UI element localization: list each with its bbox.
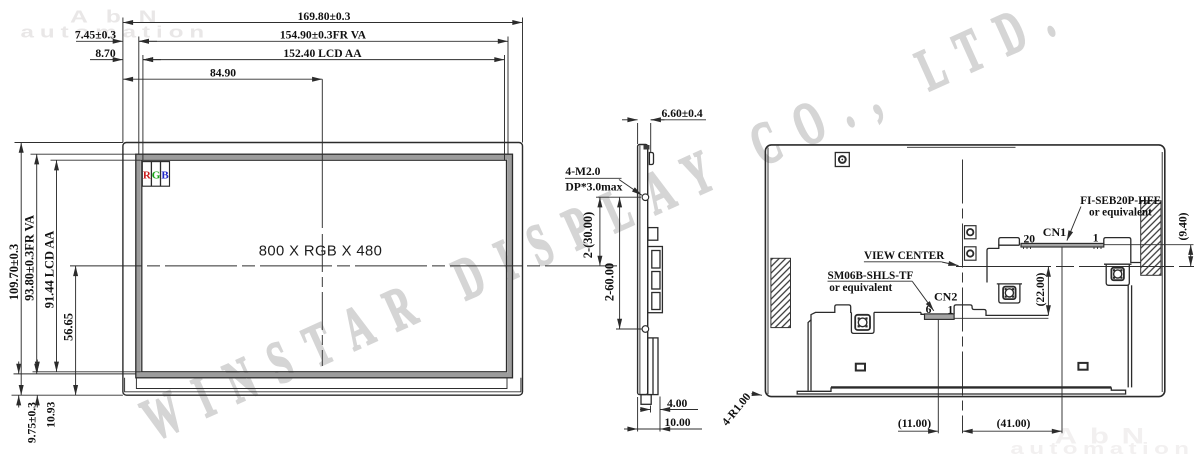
- svg-text:8.70: 8.70: [95, 47, 115, 60]
- svg-text:109.70±0.3: 109.70±0.3: [7, 244, 21, 300]
- svg-text:(22.00): (22.00): [1034, 272, 1047, 306]
- svg-text:6: 6: [926, 303, 932, 316]
- svg-text:(11.00): (11.00): [898, 417, 931, 430]
- svg-text:152.40 LCD AA: 152.40 LCD AA: [283, 47, 362, 60]
- svg-text:169.80±0.3: 169.80±0.3: [298, 10, 351, 23]
- svg-text:10.00: 10.00: [665, 416, 691, 429]
- svg-text:1: 1: [948, 304, 954, 317]
- svg-text:154.90±0.3FR VA: 154.90±0.3FR VA: [280, 29, 367, 42]
- svg-text:B: B: [161, 170, 169, 182]
- svg-text:9.75±0.3: 9.75±0.3: [25, 402, 38, 443]
- svg-text:automation: automation: [1010, 439, 1194, 458]
- svg-text:4.00: 4.00: [667, 397, 687, 410]
- svg-text:6.60±0.4: 6.60±0.4: [662, 107, 703, 120]
- svg-text:DP*3.0max: DP*3.0max: [565, 180, 622, 193]
- svg-text:G: G: [152, 170, 161, 182]
- svg-text:93.80±0.3FR VA: 93.80±0.3FR VA: [23, 215, 37, 301]
- svg-text:CN1: CN1: [1043, 225, 1066, 239]
- svg-text:or equivalent: or equivalent: [829, 282, 892, 294]
- svg-text:56.65: 56.65: [62, 313, 76, 341]
- svg-text:800 X RGB X 480: 800 X RGB X 480: [259, 244, 383, 260]
- svg-text:(9.40): (9.40): [1177, 212, 1190, 240]
- svg-text:2-60.00: 2-60.00: [603, 263, 617, 301]
- svg-text:R: R: [143, 170, 152, 182]
- svg-text:20: 20: [1024, 233, 1036, 246]
- svg-text:CN2: CN2: [934, 290, 957, 304]
- svg-text:84.90: 84.90: [210, 67, 236, 80]
- svg-text:FI-SEB20P-HFE: FI-SEB20P-HFE: [1080, 195, 1161, 207]
- svg-text:4-R1.00: 4-R1.00: [719, 390, 753, 428]
- svg-text:2-(30.00): 2-(30.00): [581, 212, 595, 258]
- svg-text:SM06B-SHLS-TF: SM06B-SHLS-TF: [828, 270, 914, 282]
- svg-text:7.45±0.3: 7.45±0.3: [75, 29, 116, 42]
- svg-text:4-M2.0: 4-M2.0: [565, 165, 600, 178]
- svg-text:(41.00): (41.00): [997, 417, 1031, 430]
- svg-text:WINSTAR DISPLAY CO., LTD.: WINSTAR DISPLAY CO., LTD.: [132, 0, 1081, 453]
- svg-text:VIEW CENTER: VIEW CENTER: [864, 250, 945, 262]
- svg-text:or equivalent: or equivalent: [1089, 207, 1152, 219]
- svg-text:1: 1: [1093, 231, 1099, 244]
- svg-text:91.44 LCD AA: 91.44 LCD AA: [43, 231, 57, 308]
- svg-text:10.93: 10.93: [44, 401, 57, 427]
